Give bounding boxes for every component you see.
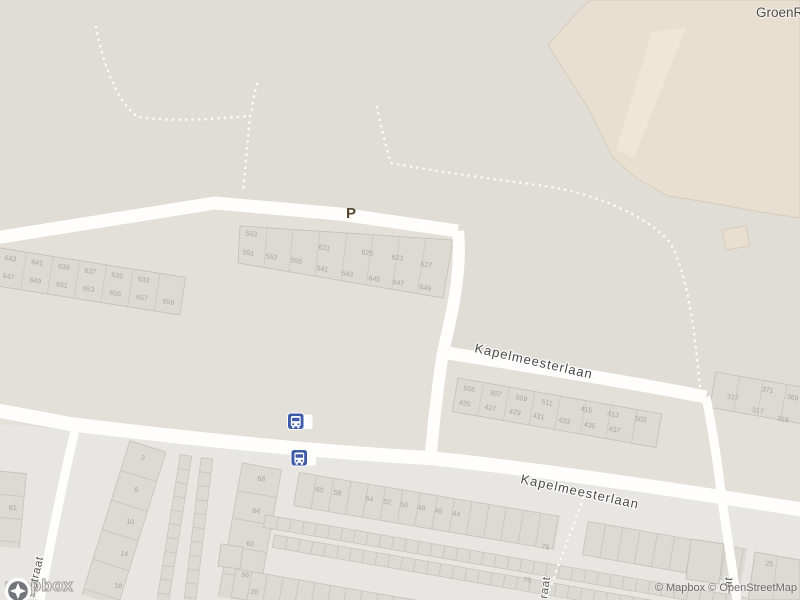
house-number: 18 [114, 583, 123, 591]
house-number: 54 [365, 495, 374, 503]
bus-windshield [292, 418, 299, 421]
bus-wheel [297, 426, 299, 428]
attribution-credits[interactable]: © Mapbox © OpenStreetMap [655, 582, 797, 594]
parking-label: P [346, 205, 356, 222]
house-number: 25 [765, 560, 774, 568]
small-building-tan [722, 226, 750, 250]
bus-headlight [296, 460, 298, 462]
house-number: 68 [257, 476, 266, 484]
house-number: 10 [126, 519, 135, 527]
map-attribution[interactable]: © Mapbox © OpenStreetMap [655, 582, 797, 594]
house-number: 75 [523, 576, 532, 584]
bus-stop-icon[interactable] [291, 450, 316, 467]
house-number: 48 [417, 504, 426, 512]
building-annex [218, 544, 243, 569]
mapbox-logo-link[interactable]: mapbox [3, 576, 73, 599]
building-bottom-right-west [686, 539, 724, 584]
house-number: 79 [541, 543, 550, 551]
house-number: 52 [383, 498, 392, 506]
bus-windshield [296, 454, 303, 457]
house-number: 46 [434, 507, 443, 515]
house-number: 44 [452, 510, 461, 518]
mapbox-star-logo-icon [3, 576, 33, 600]
area-label-groenr: GroenR [756, 5, 800, 20]
house-number: 56 [241, 572, 250, 580]
house-number: 60 [315, 486, 324, 494]
bus-stop-icon[interactable] [288, 413, 313, 430]
house-number: 81 [9, 505, 17, 513]
bus-wheel [301, 463, 303, 465]
house-number: 20 [250, 588, 259, 596]
bus-wheel [292, 426, 294, 428]
map-tiles: 643 641 639 637 635 633 647 649 651 653 … [0, 0, 800, 600]
bus-headlight [292, 423, 294, 425]
house-number: 60 [246, 541, 255, 549]
bus-headlight [301, 460, 303, 462]
bus-wheel [296, 463, 298, 465]
house-number: 58 [333, 489, 342, 497]
bus-headlight [297, 423, 299, 425]
house-number: 50 [400, 501, 409, 509]
house-number: 14 [120, 551, 129, 559]
map-canvas[interactable]: 643 641 639 637 635 633 647 649 651 653 … [0, 0, 800, 600]
house-number: 64 [252, 508, 261, 516]
